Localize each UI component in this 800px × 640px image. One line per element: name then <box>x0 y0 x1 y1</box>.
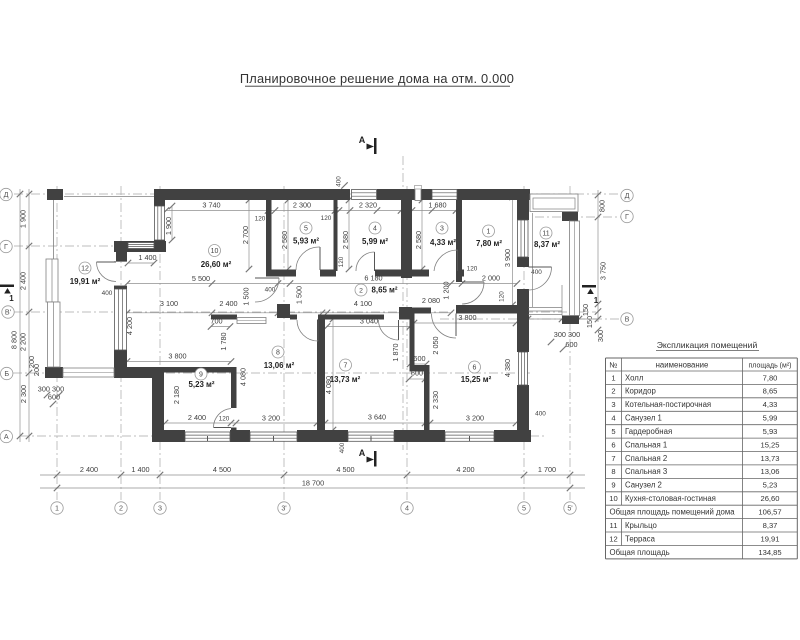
svg-text:2 330: 2 330 <box>431 391 440 409</box>
svg-text:Коридор: Коридор <box>625 387 656 396</box>
svg-text:400: 400 <box>102 290 113 297</box>
svg-text:1 500: 1 500 <box>242 287 251 305</box>
svg-text:Планировочное решение дома на: Планировочное решение дома на отм. 0.000 <box>240 71 514 86</box>
svg-text:4,33 м²: 4,33 м² <box>430 238 456 247</box>
svg-text:4: 4 <box>405 504 409 513</box>
svg-text:3 750: 3 750 <box>599 262 608 280</box>
svg-text:№: № <box>609 360 617 369</box>
svg-text:Терраса: Терраса <box>625 534 656 543</box>
svg-text:1 900: 1 900 <box>164 217 173 235</box>
svg-text:5,93 м²: 5,93 м² <box>293 237 319 246</box>
svg-text:3 900: 3 900 <box>503 249 512 267</box>
svg-text:8,37: 8,37 <box>763 521 778 530</box>
svg-text:120: 120 <box>338 256 345 267</box>
svg-text:13,73 м²: 13,73 м² <box>330 375 361 384</box>
svg-text:18 700: 18 700 <box>302 479 324 488</box>
svg-text:120: 120 <box>467 266 478 273</box>
svg-text:4: 4 <box>373 226 377 233</box>
svg-text:4: 4 <box>611 414 615 423</box>
svg-text:Кухня-столовая-гостиная: Кухня-столовая-гостиная <box>625 494 716 503</box>
svg-text:4 500: 4 500 <box>213 465 231 474</box>
svg-text:1 870: 1 870 <box>391 343 400 361</box>
svg-text:Крыльцо: Крыльцо <box>625 521 657 530</box>
svg-text:5,99 м²: 5,99 м² <box>362 237 388 246</box>
svg-text:Экспликация помещений: Экспликация помещений <box>657 340 758 350</box>
svg-text:4 500: 4 500 <box>336 465 354 474</box>
svg-text:наименование: наименование <box>656 360 709 369</box>
svg-text:площадь (м²): площадь (м²) <box>749 362 792 369</box>
svg-text:19,91: 19,91 <box>760 534 779 543</box>
svg-text:11: 11 <box>542 231 549 238</box>
svg-text:12: 12 <box>609 534 617 543</box>
svg-text:7,80: 7,80 <box>763 373 778 382</box>
svg-text:2 300: 2 300 <box>19 385 28 403</box>
svg-text:5,23 м²: 5,23 м² <box>188 380 214 389</box>
svg-text:3 200: 3 200 <box>262 414 280 423</box>
svg-text:2 400: 2 400 <box>80 465 98 474</box>
svg-text:5: 5 <box>304 226 308 233</box>
svg-text:Д: Д <box>625 191 630 200</box>
svg-text:1: 1 <box>594 296 599 305</box>
svg-text:13,06 м²: 13,06 м² <box>264 361 295 370</box>
svg-text:9: 9 <box>199 372 203 379</box>
svg-text:4 380: 4 380 <box>503 359 512 377</box>
svg-text:2: 2 <box>611 387 615 396</box>
svg-text:12: 12 <box>81 266 89 273</box>
svg-text:5: 5 <box>611 427 615 436</box>
svg-text:Санузел 1: Санузел 1 <box>625 414 662 423</box>
svg-text:Холл: Холл <box>625 373 644 382</box>
svg-text:1: 1 <box>9 294 14 303</box>
svg-text:Г: Г <box>4 242 8 251</box>
svg-text:1 400: 1 400 <box>131 465 149 474</box>
svg-text:Спальная 1: Спальная 1 <box>625 440 667 449</box>
svg-text:2 700: 2 700 <box>241 226 250 244</box>
svg-text:106,57: 106,57 <box>758 508 781 517</box>
svg-text:13,06: 13,06 <box>760 467 779 476</box>
svg-text:2 580: 2 580 <box>414 231 423 249</box>
svg-text:Спальная 2: Спальная 2 <box>625 454 667 463</box>
svg-text:Общая площадь помещений дома: Общая площадь помещений дома <box>610 508 736 517</box>
svg-text:1: 1 <box>55 504 59 513</box>
svg-text:3 200: 3 200 <box>466 414 484 423</box>
svg-text:3: 3 <box>158 504 162 513</box>
svg-text:26,60 м²: 26,60 м² <box>201 260 232 269</box>
svg-text:5,99: 5,99 <box>763 414 778 423</box>
svg-text:Спальная 3: Спальная 3 <box>625 467 667 476</box>
svg-text:3 640: 3 640 <box>368 413 386 422</box>
svg-text:1 900: 1 900 <box>19 210 28 228</box>
svg-text:13,73: 13,73 <box>760 454 779 463</box>
svg-text:1 780: 1 780 <box>219 332 228 350</box>
svg-text:4 200: 4 200 <box>456 465 474 474</box>
svg-text:120: 120 <box>219 416 230 423</box>
svg-text:9: 9 <box>611 481 615 490</box>
svg-text:2 400: 2 400 <box>19 272 28 290</box>
svg-text:26,60: 26,60 <box>760 494 779 503</box>
svg-text:Б: Б <box>4 369 9 378</box>
svg-text:3': 3' <box>281 504 287 513</box>
svg-text:1 200: 1 200 <box>442 281 451 299</box>
svg-text:600: 600 <box>565 340 577 349</box>
svg-text:3 100: 3 100 <box>160 299 178 308</box>
svg-text:5': 5' <box>567 504 573 513</box>
svg-text:3: 3 <box>440 226 444 233</box>
svg-text:150: 150 <box>585 316 594 328</box>
svg-text:Д: Д <box>4 190 9 199</box>
svg-text:2 300: 2 300 <box>293 201 311 210</box>
svg-text:400: 400 <box>336 176 343 187</box>
svg-text:120: 120 <box>499 291 506 302</box>
svg-text:7: 7 <box>611 454 615 463</box>
svg-text:300 300: 300 300 <box>554 330 580 339</box>
svg-text:8: 8 <box>611 467 615 476</box>
svg-text:19,91 м²: 19,91 м² <box>70 277 101 286</box>
svg-text:2: 2 <box>359 287 363 294</box>
svg-text:15,25: 15,25 <box>760 440 779 449</box>
svg-text:150: 150 <box>581 304 590 316</box>
svg-text:2 080: 2 080 <box>422 296 440 305</box>
svg-text:Общая площадь: Общая площадь <box>610 548 670 557</box>
svg-text:3 800: 3 800 <box>168 352 186 361</box>
svg-text:Г: Г <box>625 212 629 221</box>
svg-text:400: 400 <box>535 411 546 418</box>
svg-text:8: 8 <box>276 350 280 357</box>
svg-text:Гардеробная: Гардеробная <box>625 427 672 436</box>
svg-text:300: 300 <box>596 330 605 342</box>
svg-text:4,33: 4,33 <box>763 400 778 409</box>
svg-text:2 000: 2 000 <box>482 274 500 283</box>
svg-text:2 580: 2 580 <box>341 231 350 249</box>
svg-text:3: 3 <box>611 400 615 409</box>
svg-text:5 500: 5 500 <box>192 274 210 283</box>
svg-text:2 400: 2 400 <box>188 413 206 422</box>
svg-text:4 100: 4 100 <box>354 299 372 308</box>
svg-text:8,65: 8,65 <box>763 387 778 396</box>
svg-text:2 400: 2 400 <box>219 299 237 308</box>
svg-text:200: 200 <box>32 364 41 376</box>
svg-text:В: В <box>625 315 630 324</box>
svg-text:А: А <box>359 448 366 458</box>
svg-text:Санузел 2: Санузел 2 <box>625 481 662 490</box>
svg-text:120: 120 <box>255 216 266 223</box>
svg-text:5: 5 <box>522 504 526 513</box>
svg-text:Котельная-постирочная: Котельная-постирочная <box>625 400 711 409</box>
svg-text:7: 7 <box>344 363 348 370</box>
svg-text:11: 11 <box>610 521 618 530</box>
svg-text:4 080: 4 080 <box>239 368 248 386</box>
svg-text:В': В' <box>5 308 12 317</box>
svg-text:2: 2 <box>119 504 123 513</box>
svg-text:2 580: 2 580 <box>280 231 289 249</box>
svg-text:600: 600 <box>413 354 425 363</box>
svg-text:1: 1 <box>611 373 615 382</box>
svg-text:8,65 м²: 8,65 м² <box>371 286 397 295</box>
svg-text:5,93: 5,93 <box>763 427 778 436</box>
svg-text:10: 10 <box>609 494 617 503</box>
svg-text:5,23: 5,23 <box>763 481 778 490</box>
svg-text:2 180: 2 180 <box>172 386 181 404</box>
svg-text:15,25 м²: 15,25 м² <box>461 375 492 384</box>
svg-text:800: 800 <box>598 200 607 212</box>
svg-text:3 740: 3 740 <box>202 201 220 210</box>
svg-text:600: 600 <box>48 393 60 402</box>
svg-text:1 700: 1 700 <box>538 465 556 474</box>
svg-text:2 050: 2 050 <box>431 336 440 354</box>
svg-text:2 320: 2 320 <box>359 201 377 210</box>
svg-text:134,85: 134,85 <box>758 548 781 557</box>
svg-text:400: 400 <box>339 442 346 453</box>
svg-text:1 680: 1 680 <box>428 201 446 210</box>
svg-text:120: 120 <box>321 215 332 222</box>
svg-text:6: 6 <box>473 365 477 372</box>
svg-text:1: 1 <box>487 229 491 236</box>
svg-text:А: А <box>4 432 9 441</box>
svg-text:10: 10 <box>211 248 219 255</box>
svg-text:8,37 м²: 8,37 м² <box>534 240 560 249</box>
svg-text:3 800: 3 800 <box>458 313 476 322</box>
svg-text:А: А <box>359 135 366 145</box>
svg-text:8 800: 8 800 <box>10 331 19 349</box>
svg-text:1 400: 1 400 <box>138 253 156 262</box>
svg-text:2 200: 2 200 <box>19 333 28 351</box>
svg-text:6: 6 <box>611 440 615 449</box>
svg-text:7,80 м²: 7,80 м² <box>476 239 502 248</box>
svg-text:1 500: 1 500 <box>295 286 304 304</box>
